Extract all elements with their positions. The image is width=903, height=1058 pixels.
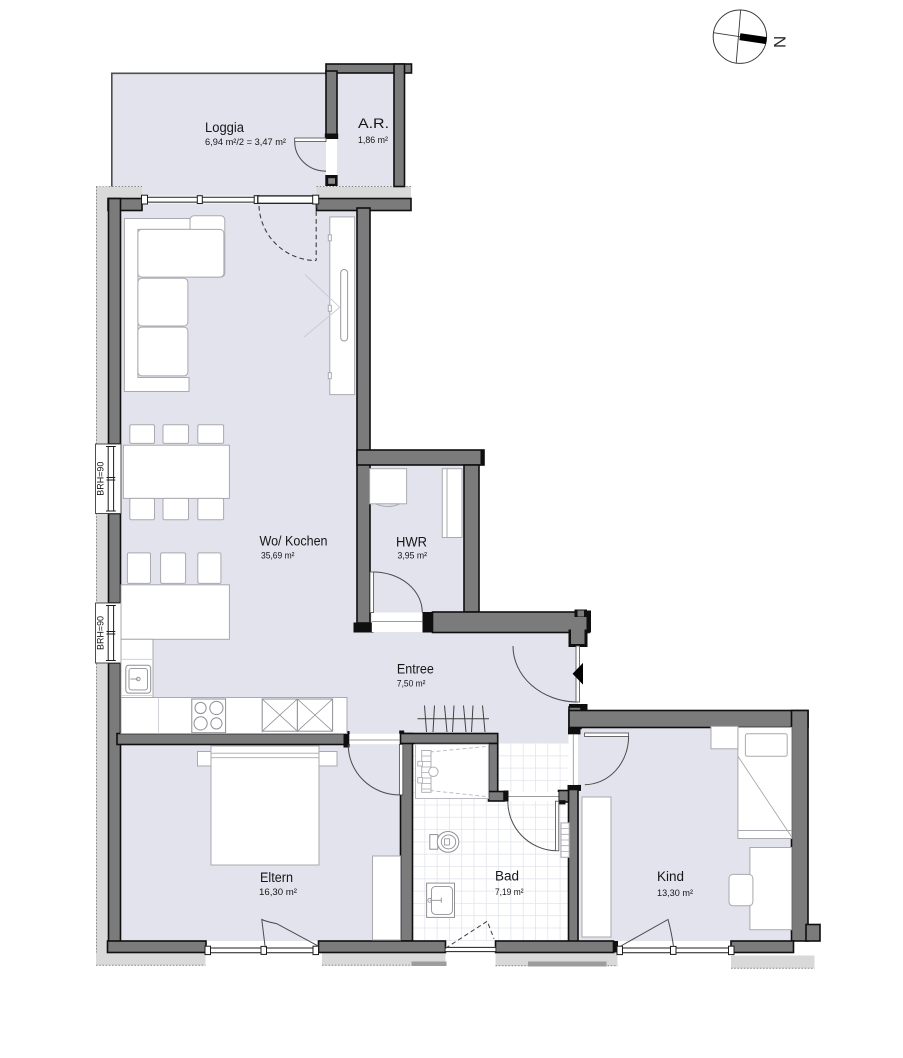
svg-text:Entree: Entree — [397, 662, 434, 677]
svg-text:BRH=90: BRH=90 — [96, 462, 106, 496]
svg-text:3,95 m²: 3,95 m² — [398, 550, 428, 560]
svg-text:7,19 m²: 7,19 m² — [495, 887, 524, 897]
svg-text:Wo/ Kochen: Wo/ Kochen — [260, 533, 328, 548]
svg-text:Bad: Bad — [495, 868, 519, 883]
svg-text:A.R.: A.R. — [358, 116, 389, 131]
svg-text:35,69 m²: 35,69 m² — [261, 550, 295, 560]
svg-text:16,30 m²: 16,30 m² — [259, 887, 297, 897]
svg-text:Eltern: Eltern — [260, 870, 293, 885]
svg-text:6,94 m²/2 = 3,47 m²: 6,94 m²/2 = 3,47 m² — [205, 137, 286, 147]
svg-text:N: N — [770, 36, 789, 48]
svg-text:BRH=90: BRH=90 — [96, 616, 106, 650]
svg-text:Loggia: Loggia — [205, 120, 245, 135]
svg-text:HWR: HWR — [396, 535, 427, 550]
svg-text:Kind: Kind — [657, 869, 684, 884]
svg-text:13,30 m²: 13,30 m² — [657, 888, 693, 898]
svg-text:1,86 m²: 1,86 m² — [358, 135, 388, 145]
svg-text:7,50 m²: 7,50 m² — [397, 679, 426, 689]
